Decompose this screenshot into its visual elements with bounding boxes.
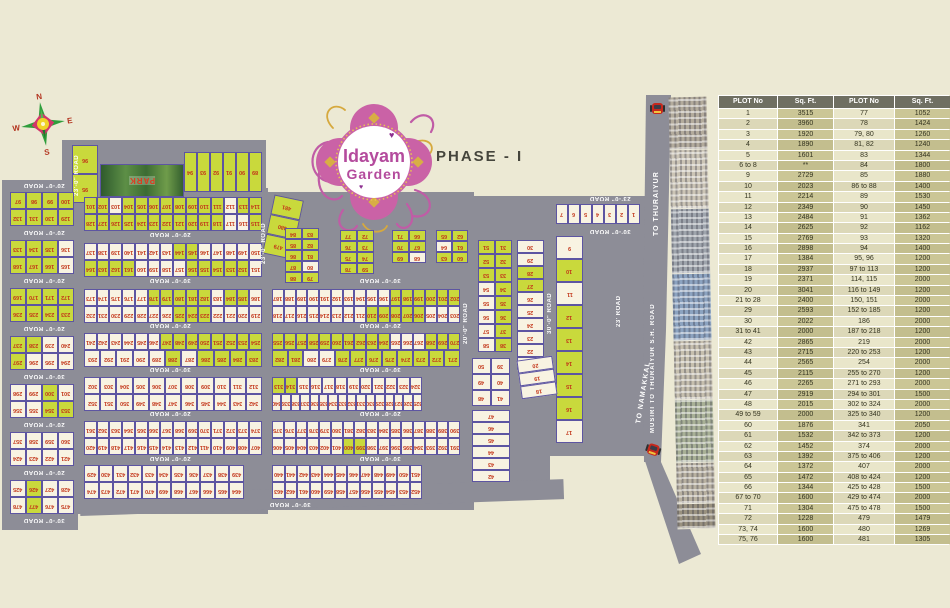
plot-cell: 468 [171,482,186,499]
car-icon [649,101,666,121]
road-label: 23'-0" ROAD [74,148,80,203]
plot-cell: 97 [10,192,26,209]
road-label: 20'-0" ROAD [14,229,74,235]
plot-no-cell: 64 [719,462,777,471]
plot-cell: 56 [478,310,495,324]
plot-cell: 248 [173,333,186,350]
sqft-cell: 1472 [778,473,833,482]
plot-cell: 332 [347,394,356,411]
plot-cell: 324 [410,377,423,394]
plot-cell: 206 [413,306,425,323]
plot-cell: 451 [410,465,423,482]
plot-cell: 230 [109,306,122,323]
plot-cell: 309 [197,377,213,394]
plot-cell: 292 [100,350,116,367]
plot-cell: 149 [237,243,250,260]
plot-cell: 127 [97,214,110,231]
plot-no-cell: 375 to 406 [834,452,894,461]
plot-cell: 203 [448,306,460,323]
plot-cell: 144 [173,243,186,260]
plot-cell: 154 [211,260,224,277]
plot-cell: 265 [390,333,402,350]
plot-block: 3133143153163173183193203213223233243403… [272,377,422,411]
plot-cell: 470 [142,482,157,499]
plot-cell: 422 [42,449,58,466]
plot-cell: 184 [224,289,237,306]
plot-cell: 12 [556,305,583,328]
plot-cell: 344 [214,394,230,411]
plot-cell: 330 [366,394,375,411]
plot-cell: 128 [84,214,97,231]
plot-cell: 1 [628,204,640,224]
plot-cell: 450 [397,465,410,482]
plot-cell: 177 [135,289,148,306]
plot-no-cell: 11 [719,192,777,201]
plot-cell: 318 [335,377,348,394]
plot-no-cell: 62 [719,442,777,451]
plot-cell: 384 [378,421,390,438]
plot-no-cell: 407 [834,462,894,471]
plot-cell: 187 [272,289,284,306]
plot-cell: 180 [173,289,186,306]
plot-cell: 102 [97,197,110,214]
table-header: Sq. Ft. [895,96,950,108]
plot-cell: 64 [436,241,452,252]
plot-cell: 356 [10,401,26,418]
plot-cell: 216 [296,306,308,323]
plot-block: 979899100132131130129 [10,192,74,226]
sqft-cell: 2000 [895,493,950,502]
plot-no-cell: 61 [719,431,777,440]
plot-cell: 296 [26,353,42,370]
plot-cell: 197 [390,289,402,306]
plot-block: 84838582868187808879 [285,228,319,283]
plot-no-cell: 4 [719,140,777,149]
plot-cell: 425 [10,480,26,497]
plot-cell: 217 [284,306,296,323]
sqft-cell: 2000 [778,327,833,336]
plot-cell: 212 [343,306,355,323]
plot-cell: 403 [307,438,319,455]
plot-cell: 252 [224,333,237,350]
plot-cell: 454 [385,482,398,499]
plot-cell: 9 [556,236,583,259]
plot-no-cell: 481 [834,535,894,544]
plot-cell: 86 [285,250,302,261]
plot-cell: 436 [186,465,201,482]
plot-no-cell: 15 [719,234,777,243]
plot-cell: 221 [224,306,237,323]
plot-cell: 11 [556,282,583,305]
plot-block: 91011121314151617 [556,236,583,443]
plot-cell: 249 [186,333,199,350]
sqft-cell: 1200 [895,431,950,440]
plot-cell: 376 [284,421,296,438]
sqft-cell: 2000 [895,462,950,471]
plot-cell: 452 [410,482,423,499]
sqft-cell: 1344 [778,483,833,492]
plot-cell: 251 [211,333,224,350]
plot-cell: 116 [237,214,250,231]
plot-cell: 120 [186,214,199,231]
plot-cell: 183 [211,289,224,306]
plot-cell: 57 [478,324,495,338]
plot-cell: 213 [331,306,343,323]
plot-cell: 274 [397,350,413,367]
plot-cell: 89 [249,152,262,192]
plot-cell: 417 [122,438,135,455]
plot-no-cell: 18 [719,265,777,274]
plot-no-cell: 12 [719,203,777,212]
plot-cell: 317 [322,377,335,394]
plot-cell: 339 [281,394,290,411]
plot-cell: 209 [378,306,390,323]
sqft-cell: 2023 [778,182,833,191]
plot-block: 3753763773783793803813823833843853863873… [272,421,460,455]
road-label: 20'-0" ROAD [120,322,220,328]
plot-cell: 37 [495,324,512,338]
plot-cell: 440 [272,465,285,482]
plot-cell: 132 [10,209,26,226]
road-label: 20'-0" ROAD [120,231,220,237]
sqft-cell: 2565 [778,358,833,367]
plot-cell: 306 [149,377,165,394]
plot-cell: 175 [109,289,122,306]
plot-cell: 435 [171,465,186,482]
plot-no-cell: 97 to 113 [834,265,894,274]
plot-cell: 442 [297,465,310,482]
heart-icon: ♥ [389,130,394,140]
plot-cell: 179 [160,289,173,306]
plot-cell: 474 [84,482,99,499]
plot-cell: 75 [340,252,357,263]
plot-cell: 461 [297,482,310,499]
plot-cell: 264 [378,333,390,350]
sqft-cell: 2919 [778,390,833,399]
sqft-cell: 1920 [778,130,833,139]
plot-cell: 397 [378,438,390,455]
plot-no-cell: 90 [834,203,894,212]
plot-block: 656264616360 [436,230,468,263]
sqft-cell: 1305 [895,535,950,544]
plot-no-cell: 475 to 478 [834,504,894,513]
plot-cell: 297 [10,353,26,370]
plot-block: 133134135136168167166165 [10,240,74,274]
road-label: 20'-0" ROAD [14,277,74,283]
sqft-cell: 1532 [778,431,833,440]
plot-cell: 166 [42,257,58,274]
plot-block: 2412422432442452462472482492502512522532… [84,333,262,367]
plot-cell: 161 [122,260,135,277]
road-label: 30'-0" ROAD [330,277,430,283]
plot-block: 4404414424434444454464474484494504514634… [272,465,422,499]
plot-cell: 358 [26,432,42,449]
compass-w: W [12,123,21,133]
plot-cell: 92 [210,152,223,192]
plot-cell: 385 [390,421,402,438]
plot-cell: 107 [160,197,173,214]
plot-cell: 72 [357,230,374,241]
plot-cell: 55 [478,296,495,310]
plot-cell: 43 [472,458,510,470]
plot-cell: 346 [181,394,197,411]
plot-cell: 340 [272,394,281,411]
plot-cell: 429 [84,465,99,482]
plot-cell: 363 [109,421,122,438]
sqft-cell: 1052 [895,109,950,118]
sqft-cell: 1400 [895,244,950,253]
plot-cell: 319 [347,377,360,394]
road-label: 20'-0" ROAD [14,325,74,331]
plot-cell: 402 [319,438,331,455]
plot-cell: 445 [335,465,348,482]
plot-cell: 259 [319,333,331,350]
plot-no-cell: 2 [719,119,777,128]
plot-block: 30292827262524232221 [517,240,544,370]
plot-cell: 407 [249,438,262,455]
sqft-cell: 1304 [778,504,833,513]
plot-no-cell: 6 to 8 [719,161,777,170]
plot-cell: 413 [173,438,186,455]
plot-cell: 389 [437,421,449,438]
plot-cell: 66 [409,230,426,241]
plot-no-cell: 67 to 70 [719,493,777,502]
plot-cell: 76 [340,241,357,252]
plot-block: 1871881891901911921931941951961971981992… [272,289,460,323]
plot-cell: 284 [230,350,246,367]
plot-cell: 273 [413,350,429,367]
plot-cell: 290 [133,350,149,367]
plot-cell: 408 [237,438,250,455]
road-label: 30'-0" ROAD [120,277,220,283]
plot-cell: 34 [495,282,512,296]
plot-cell: 82 [302,239,319,250]
plot-no-cell: 9 [719,171,777,180]
plot-cell: 391 [448,438,460,455]
plot-cell: 372 [224,421,237,438]
sqft-cell: 2715 [778,348,833,357]
plot-cell: 162 [109,260,122,277]
sqft-cell: 2015 [778,400,833,409]
building-photo [668,97,707,151]
plot-cell: 250 [198,333,211,350]
plot-cell: 50 [472,358,491,374]
sqft-cell: 1200 [895,254,950,263]
sqft-cell: 1800 [895,161,950,170]
plot-block: 1011021031041051061071081091101111121131… [84,197,262,231]
plot-cell: 73 [357,241,374,252]
heart-icon: ♥ [359,184,363,191]
logo-text-idayam: Idayam [303,146,445,167]
plot-cell: 262 [354,333,366,350]
plot-cell: 370 [198,421,211,438]
plot-cell: 369 [186,421,199,438]
road-label: 30'-0" ROAD [575,228,645,234]
plot-cell: 361 [84,421,97,438]
plot-cell: 404 [296,438,308,455]
plot-cell: 364 [122,421,135,438]
plot-no-cell: 63 [719,452,777,461]
plot-cell: 242 [97,333,110,350]
plot-cell: 477 [26,497,42,514]
plot-cell: 390 [448,421,460,438]
sqft-cell: 2937 [778,265,833,274]
plot-cell: 421 [58,449,74,466]
plot-cell: 83 [302,228,319,239]
road-label: 23'-0" ROAD [575,195,645,201]
plot-no-cell: 60 [719,421,777,430]
plot-cell: 286 [197,350,213,367]
road-label: 20'-0" ROAD [330,322,430,328]
plot-cell: 300 [42,384,58,401]
plot-cell: 349 [133,394,149,411]
plot-cell: 143 [160,243,173,260]
sqft-cell: 1890 [778,140,833,149]
park-label: PARK [129,176,155,185]
plot-cell: 360 [58,432,74,449]
plot-cell: 194 [354,289,366,306]
sqft-cell: 1362 [895,213,950,222]
plot-no-cell: 220 to 253 [834,348,894,357]
plot-cell: 146 [198,243,211,260]
plot-cell: 269 [437,333,449,350]
plot-cell: 357 [10,432,26,449]
plot-no-cell: 42 [719,338,777,347]
plot-cell: 336 [310,394,319,411]
plot-cell: 59 [357,263,374,274]
plot-cell: 101 [84,197,97,214]
plot-cell: 42 [472,470,510,482]
plot-cell: 418 [109,438,122,455]
plot-cell: 260 [331,333,343,350]
road-label: 20'-0" ROAD [120,455,220,461]
plot-cell: 423 [26,449,42,466]
plot-cell: 238 [26,336,42,353]
plot-cell: 15 [556,374,583,397]
plot-no-cell: 342 to 373 [834,431,894,440]
plot-cell: 199 [413,289,425,306]
plot-cell: 379 [319,421,331,438]
plot-cell: 210 [366,306,378,323]
plot-cell: 255 [272,333,284,350]
road-label: 20'-0" ROAD [463,288,469,358]
plot-cell: 348 [149,394,165,411]
building-photo [677,504,716,530]
plot-cell: 48 [472,390,491,406]
plot-cell: 202 [448,289,460,306]
plot-cell: 25 [517,305,544,318]
plot-cell: 241 [84,333,97,350]
plot-cell: 460 [310,482,323,499]
plot-cell: 17 [556,420,583,443]
plot-cell: 270 [448,333,460,350]
sqft-cell: 1600 [778,535,833,544]
plot-cell: 171 [42,288,58,305]
plot-cell: 471 [128,482,143,499]
plot-no-cell: 479 [834,514,894,523]
plot-no-cell: 71 [719,504,777,513]
plot-cell: 247 [160,333,173,350]
plot-cell: 291 [116,350,132,367]
plot-cell: 80 [302,261,319,272]
plot-cell: 434 [157,465,172,482]
plot-cell: 439 [229,465,244,482]
plot-no-cell: 1 [719,109,777,118]
site-plan-poster: PARK N E S W [0,0,950,608]
plot-cell: 178 [148,289,161,306]
road-label: 30'-0" ROAD [120,366,220,372]
plot-cell: 188 [284,289,296,306]
sqft-cell: 1601 [778,151,833,160]
plot-cell: 427 [42,480,58,497]
plot-no-cell: 152 to 185 [834,306,894,315]
plot-cell: 31 [495,240,512,254]
plot-no-cell: 79, 80 [834,130,894,139]
plot-cell: 293 [84,350,100,367]
plot-cell: 192 [331,289,343,306]
plot-cell: 52 [478,254,495,268]
plot-cell: 4 [592,204,604,224]
sqft-cell: 2371 [778,275,833,284]
plot-no-cell: 84 [834,161,894,170]
plot-cell: 409 [224,438,237,455]
sqft-cell: 1200 [895,473,950,482]
plot-cell: 152 [237,260,250,277]
plot-no-cell: 13 [719,213,777,222]
sqft-cell: 1400 [895,182,950,191]
sqft-cell: 1392 [778,452,833,461]
plot-cell: 406 [272,438,284,455]
plot-no-cell: 45 [719,369,777,378]
plot-cell: 326 [403,394,412,411]
plot-no-cell: 94 [834,244,894,253]
plot-cell: 237 [10,336,26,353]
plot-cell: 244 [122,333,135,350]
plot-cell: 386 [401,421,413,438]
plot-cell: 36 [495,310,512,324]
plot-cell: 394 [413,438,425,455]
plot-cell: 157 [173,260,186,277]
plot-cell: 200 [425,289,437,306]
plot-block: 7654321 [556,204,640,224]
road-label: 20'-0" ROAD [14,421,74,427]
plot-cell: 399 [354,438,366,455]
sqft-cell: 1200 [895,286,950,295]
plot-cell: 261 [343,333,355,350]
plot-cell: 153 [224,260,237,277]
plot-cell: 5 [580,204,592,224]
plot-cell: 444 [322,465,335,482]
plot-cell: 186 [249,289,262,306]
plot-cell: 347 [165,394,181,411]
plot-cell: 334 [328,394,337,411]
plot-cell: 310 [214,377,230,394]
plot-cell: 295 [42,353,58,370]
plot-cell: 77 [340,230,357,241]
plot-cell: 204 [437,306,449,323]
road-label: 30'-0" ROAD [547,278,553,348]
plot-block: 716670676968 [392,230,426,263]
plot-cell: 219 [249,306,262,323]
plot-cell: 191 [319,289,331,306]
plot-cell: 109 [186,197,199,214]
plot-no-cell: 408 to 424 [834,473,894,482]
plot-cell: 298 [10,384,26,401]
plot-no-cell: 21 to 28 [719,296,777,305]
plot-cell: 365 [135,421,148,438]
plot-cell: 147 [211,243,224,260]
plot-no-cell: 46 [719,379,777,388]
